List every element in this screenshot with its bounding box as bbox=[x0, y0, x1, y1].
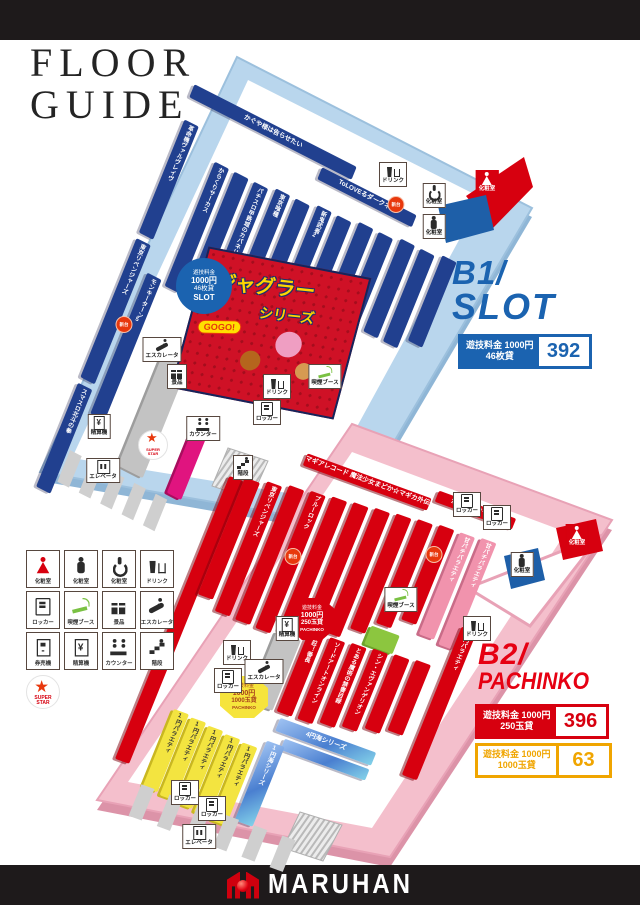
b2-area1000-l3: 1000玉貸 bbox=[231, 698, 256, 705]
marker-icon bbox=[318, 366, 332, 380]
marker-icon bbox=[260, 402, 274, 416]
marker-icon bbox=[205, 798, 219, 812]
marker-icon bbox=[386, 164, 400, 178]
b2-fee250-line1: 遊技料金 1000円 bbox=[483, 710, 551, 721]
marker-icon bbox=[192, 826, 206, 840]
legend-label: 化粧室 bbox=[111, 576, 127, 584]
marker-label: 景品 bbox=[171, 380, 182, 387]
marker-label: 新台 bbox=[392, 202, 401, 208]
b1-label: B1/ bbox=[452, 256, 556, 289]
marker-icon bbox=[96, 460, 110, 474]
b2-fee1000-line1: 遊技料金 1000円 bbox=[483, 749, 551, 760]
map-marker: 化粧室 bbox=[423, 183, 446, 208]
page-title-line1: FLOOR bbox=[30, 42, 196, 84]
marker-icon bbox=[221, 670, 235, 684]
legend-label: 喫煙ブース bbox=[68, 617, 95, 625]
b2-fee-badge-250: 遊技料金 1000円 250玉貸 396 bbox=[475, 704, 609, 739]
marker-label: ロッカー bbox=[174, 796, 196, 803]
legend-icon bbox=[148, 639, 166, 657]
legend-label: 化粧室 bbox=[73, 576, 89, 584]
marker-label: 新台 bbox=[430, 552, 439, 558]
legend-icon bbox=[110, 598, 128, 616]
b2-floor-label: B2/ PACHINKO bbox=[478, 640, 604, 694]
footer-bar: MARUHAN bbox=[0, 865, 640, 905]
map-marker: 化粧室 bbox=[566, 524, 589, 549]
map-marker: SUPER STAR bbox=[138, 430, 168, 460]
marker-icon bbox=[427, 216, 441, 230]
marker-label: エスカレータ bbox=[145, 353, 178, 360]
marker-icon bbox=[570, 526, 584, 540]
map-marker: カウンター bbox=[186, 416, 220, 441]
marker-icon bbox=[480, 172, 494, 186]
map-marker: ロッカー bbox=[198, 796, 226, 821]
map-marker: 化粧室 bbox=[511, 552, 534, 577]
b1-area-fee-l4: SLOT bbox=[193, 293, 214, 302]
poster-elephant-figure bbox=[272, 329, 304, 359]
map-marker: エレベータ bbox=[86, 458, 120, 483]
legend-label: 景品 bbox=[114, 617, 125, 625]
b2-area250-l4: PACHINKO bbox=[300, 627, 324, 632]
legend-label: ロッカー bbox=[32, 617, 54, 625]
maruhan-logo-icon bbox=[227, 872, 259, 899]
legend-item: 精算機 bbox=[64, 632, 98, 670]
map-marker: ドリンク bbox=[263, 374, 291, 399]
b2-area250-l3: 250玉貸 bbox=[301, 620, 323, 627]
b2-label: B2/ bbox=[478, 640, 604, 670]
b1-fee-badge: 遊技料金 1000円 46枚貸 392 bbox=[458, 334, 592, 369]
legend-icon bbox=[72, 598, 90, 616]
floor-guide-page: FLOOR GUIDE かぐや様は告らせたい bbox=[0, 0, 640, 905]
b1-area-fee-l3: 46枚貸 bbox=[194, 285, 214, 292]
marker-label: ロッカー bbox=[456, 508, 478, 515]
marker-label: 精算機 bbox=[91, 430, 108, 437]
marker-label: 新台 bbox=[120, 322, 129, 328]
map-marker: エスカレータ bbox=[244, 659, 283, 684]
marker-label: 化粧室 bbox=[514, 568, 531, 575]
legend-icon bbox=[34, 557, 52, 575]
legend-item: 化粧室 bbox=[26, 550, 60, 588]
marker-icon bbox=[460, 494, 474, 508]
marker-label: ロッカー bbox=[256, 416, 278, 423]
marker-icon bbox=[270, 376, 284, 390]
marker-label: 喫煙ブース bbox=[311, 380, 338, 387]
marker-label: SUPER STAR bbox=[141, 448, 165, 456]
map-marker: エスカレータ bbox=[142, 337, 181, 362]
legend-label: ドリンク bbox=[146, 576, 168, 584]
legend: 化粧室 化粧室 化粧室 ドリンク ロッカー bbox=[26, 550, 182, 709]
marker-label: 喫煙ブース bbox=[387, 603, 414, 610]
marker-label: ロッカー bbox=[486, 521, 508, 528]
legend-item: ロッカー bbox=[26, 591, 60, 629]
b2-fee-badge-1000: 遊技料金 1000円 1000玉貸 63 bbox=[475, 743, 612, 778]
legend-label: 精算機 bbox=[73, 658, 89, 666]
marker-label: エレベータ bbox=[185, 840, 213, 847]
poster-title: ジャグラー bbox=[214, 265, 367, 309]
legend-item: エスカレータ bbox=[140, 591, 174, 629]
map-marker: ロッカー bbox=[171, 780, 199, 805]
marker-label: エスカレータ bbox=[247, 675, 280, 682]
marker-icon bbox=[170, 366, 184, 380]
b1-floor-label: B1/ SLOT bbox=[452, 256, 556, 325]
map-marker: ドリンク bbox=[379, 162, 407, 187]
marker-icon bbox=[470, 618, 484, 632]
legend-icon bbox=[72, 639, 90, 657]
marker-label: 階段 bbox=[237, 471, 248, 478]
map-marker: 新台 bbox=[388, 196, 405, 213]
legend-label: 化粧室 bbox=[35, 576, 51, 584]
legend-label: 階段 bbox=[152, 658, 163, 666]
legend-icon bbox=[148, 598, 166, 616]
b2-area250-l2: 1000円 bbox=[301, 612, 324, 620]
marker-icon bbox=[155, 339, 169, 353]
legend-icon bbox=[148, 557, 166, 575]
legend-item: SUPER STAR bbox=[26, 675, 60, 709]
marker-icon bbox=[394, 589, 408, 603]
marker-icon bbox=[178, 782, 192, 796]
page-title-line2: GUIDE bbox=[30, 84, 196, 126]
marker-label: 化粧室 bbox=[569, 540, 586, 547]
marker-label: ドリンク bbox=[266, 390, 288, 397]
map-marker: ロッカー bbox=[253, 400, 281, 425]
map-marker: 化粧室 bbox=[476, 170, 499, 195]
b2-area1000-l4: PACHINKO bbox=[232, 705, 256, 710]
map-marker: 景品 bbox=[167, 364, 187, 389]
machine-row-label bbox=[378, 631, 386, 650]
marker-icon bbox=[92, 416, 106, 430]
marker-label: ロッカー bbox=[201, 812, 223, 819]
b1-machine-count: 392 bbox=[539, 337, 589, 366]
poster-gogo-badge: GOGO! bbox=[197, 320, 242, 335]
marker-icon bbox=[236, 457, 250, 471]
b2-fee250-text: 遊技料金 1000円 250玉貸 bbox=[478, 707, 556, 736]
marker-icon bbox=[257, 661, 271, 675]
legend-item: 化粧室 bbox=[102, 550, 136, 588]
b2-fee250-line2: 250玉貸 bbox=[483, 721, 551, 732]
b1-fee-line2: 46枚貸 bbox=[466, 351, 534, 362]
legend-icon bbox=[34, 639, 52, 657]
marker-label: エレベータ bbox=[89, 474, 117, 481]
b1-fee-text: 遊技料金 1000円 46枚貸 bbox=[461, 337, 539, 366]
map-marker: 精算機 bbox=[88, 414, 111, 439]
marker-label: 新台 bbox=[289, 554, 298, 560]
map-marker: エレベータ bbox=[182, 824, 216, 849]
marker-icon bbox=[280, 618, 294, 632]
marker-label: 精算機 bbox=[279, 632, 296, 639]
legend-icon bbox=[34, 682, 52, 700]
map-marker: ロッカー bbox=[483, 505, 511, 530]
legend-item: ドリンク bbox=[140, 550, 174, 588]
legend-label: 券売機 bbox=[35, 658, 51, 666]
b1-area-fee-badge: 遊技料金 1000円 46枚貸 SLOT bbox=[176, 258, 232, 314]
b2-machine-count-250: 396 bbox=[556, 707, 606, 736]
marker-label: ロッカー bbox=[217, 684, 239, 691]
map-marker: 喫煙ブース bbox=[384, 587, 417, 612]
marker-label: 化粧室 bbox=[426, 230, 443, 237]
marker-label: カウンター bbox=[189, 432, 217, 439]
legend-item: 券売機 bbox=[26, 632, 60, 670]
b1-fee-line1: 遊技料金 1000円 bbox=[466, 340, 534, 351]
marker-icon bbox=[515, 554, 529, 568]
legend-item: 喫煙ブース bbox=[64, 591, 98, 629]
map-marker: ロッカー bbox=[453, 492, 481, 517]
legend-icon bbox=[34, 598, 52, 616]
marker-label: 化粧室 bbox=[479, 186, 496, 193]
b2-fee1000-text: 遊技料金 1000円 1000玉貸 bbox=[478, 746, 559, 775]
legend-item: カウンター bbox=[102, 632, 136, 670]
map-marker: 新台 bbox=[116, 316, 133, 333]
legend-icon bbox=[110, 639, 128, 657]
map-marker: 新台 bbox=[426, 546, 443, 563]
legend-item: 階段 bbox=[140, 632, 174, 670]
marker-icon bbox=[230, 642, 244, 656]
legend-label: カウンター bbox=[106, 658, 133, 666]
b2-sublabel: PACHINKO bbox=[478, 670, 589, 694]
marker-icon bbox=[490, 507, 504, 521]
marker-icon bbox=[427, 185, 441, 199]
legend-item: 化粧室 bbox=[64, 550, 98, 588]
legend-icon bbox=[72, 557, 90, 575]
map-marker: ロッカー bbox=[214, 668, 242, 693]
legend-icon bbox=[110, 557, 128, 575]
b2-machine-count-1000: 63 bbox=[559, 746, 609, 775]
map-marker: 精算機 bbox=[276, 616, 299, 641]
marker-icon bbox=[196, 418, 210, 432]
marker-label: ドリンク bbox=[382, 178, 404, 185]
map-marker: 新台 bbox=[285, 548, 302, 565]
b1-sublabel: SLOT bbox=[452, 289, 556, 325]
marker-icon bbox=[146, 434, 160, 448]
legend-item: 景品 bbox=[102, 591, 136, 629]
legend-label: エスカレータ bbox=[141, 617, 173, 625]
map-marker: 階段 bbox=[233, 455, 253, 480]
map-marker: 化粧室 bbox=[423, 214, 446, 239]
page-title: FLOOR GUIDE bbox=[30, 42, 196, 127]
map-marker: 喫煙ブース bbox=[308, 364, 341, 389]
brand-name: MARUHAN bbox=[268, 869, 413, 901]
b2-fee1000-line2: 1000玉貸 bbox=[483, 760, 551, 771]
poster-bear-figure bbox=[238, 349, 263, 372]
